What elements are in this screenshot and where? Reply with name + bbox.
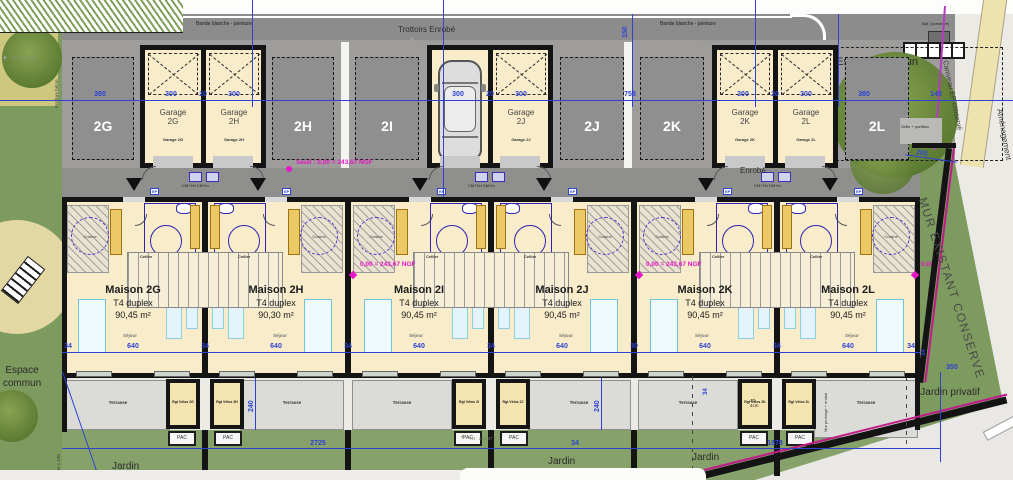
enrobe-label: Enrobé — [740, 166, 766, 175]
kitchen-circle: Cuisine — [71, 217, 109, 255]
house-title: Maison 2KT4 duplex90,45 m² — [677, 284, 732, 322]
level-marker-icon — [286, 166, 292, 172]
dashdot-axis — [692, 374, 693, 470]
survey-marker-icon: ◆ — [3, 56, 7, 62]
gate-wall-stub — [912, 143, 956, 148]
parking-spot — [845, 57, 909, 160]
bat-conserve-label: Bât. (conservé) — [922, 22, 949, 27]
parking-spot — [560, 57, 624, 160]
dim: 140 — [930, 91, 942, 99]
walkway-1 — [341, 42, 349, 168]
seuil-level: Seuil : 0,00 = 243,67 NGF — [296, 159, 373, 166]
tn-top-1: TN : 243,13 — [419, 37, 443, 42]
garage-label: Garage2K — [717, 108, 773, 126]
terrace-label: Terrasse — [393, 400, 411, 405]
garage-sublabel: Garage 2K — [717, 138, 773, 143]
dim: 34 — [64, 343, 72, 351]
entrance-arrow-icon — [412, 178, 428, 191]
garage-door — [500, 156, 540, 168]
coffret-label: CM+Tel CM+In — [754, 184, 781, 189]
dim: 758 — [624, 91, 636, 99]
utility-box — [475, 172, 488, 182]
cellier-label: Cellier — [140, 255, 152, 260]
dim: 34 — [344, 343, 352, 351]
house-title: Maison 2GT4 duplex90,45 m² — [105, 284, 161, 322]
parking-spot — [72, 57, 134, 160]
parking-label: 2K — [663, 118, 681, 134]
pac-unit: PAC — [214, 431, 242, 446]
dim-r34: 34 — [921, 349, 928, 356]
kitchen-circle: Cuisine — [300, 217, 338, 255]
jardin-label: Jardin — [548, 456, 575, 468]
terrace-label: Terrasse — [109, 400, 127, 405]
terrace-label: Terrasse — [857, 400, 875, 405]
cellier-label: Cellier — [238, 255, 250, 260]
site-plan: Bande blanche - peinture Bande blanche -… — [0, 0, 1013, 480]
dim-line-terrace — [601, 378, 602, 430]
garage-door — [153, 156, 193, 168]
jardin-label: Jardin — [692, 452, 719, 464]
parking-label: 2G — [94, 118, 113, 134]
dim: 350 — [946, 364, 958, 372]
wc-icon — [790, 203, 806, 214]
shed-label: Rgt Vélos 2G — [172, 400, 194, 404]
kitchen-circle: Cuisine — [357, 217, 395, 255]
dim-line-houses — [62, 352, 920, 353]
sidewalk-label: Trottoirs Enrobé — [398, 25, 455, 34]
dim: 300 — [800, 91, 812, 99]
dim: 300 — [515, 91, 527, 99]
tn-jardin: TN : 243,37 — [469, 436, 493, 441]
utility-box — [778, 172, 791, 182]
mur-prolonge-label: Mur prolongé + enduit — [824, 393, 829, 432]
parking-spot — [355, 57, 419, 160]
house-title: Maison 2LT4 duplex90,45 m² — [821, 284, 875, 322]
dining-table — [650, 299, 678, 353]
dim: 2725 — [310, 440, 326, 448]
parking-label: 2H — [294, 118, 312, 134]
garage-label: Garage2G — [145, 108, 201, 126]
garage-block: Garage2G Garage2H Garage 2G Garage 2H — [140, 45, 266, 168]
garage-door — [785, 156, 825, 168]
dim: 30 — [630, 343, 638, 351]
dining-table — [78, 299, 106, 353]
garage-block: Garage2I Garage2J Garage 2J — [427, 45, 553, 168]
garage-door — [213, 156, 253, 168]
dim: 640 — [842, 343, 854, 351]
parking-label: 2I — [381, 118, 393, 134]
survey-marker-icon: ◆ — [410, 37, 414, 43]
cellier-label: Cellier — [712, 255, 724, 260]
dim-t34: 34 — [703, 388, 710, 395]
dim: 640 — [127, 343, 139, 351]
garage-sublabel: Garage 2G — [145, 138, 201, 143]
garage-label: Garage2J — [493, 108, 549, 126]
pac-unit: PAC — [168, 431, 196, 446]
garage-door — [440, 156, 480, 168]
dim: 640 — [413, 343, 425, 351]
dim: 640 — [270, 343, 282, 351]
ngf-level: 0,00 = 243,67 NGF — [646, 261, 701, 268]
jardin-privatif-label: Jardin privatif — [918, 386, 982, 399]
cellier-label: Cellier — [524, 255, 536, 260]
kitchen-circle: Cuisine — [643, 217, 681, 255]
utility-box — [492, 172, 505, 182]
garage-sublabel: Garage 2L — [778, 138, 834, 143]
dining-table — [876, 299, 904, 353]
parking-label: 2L — [869, 118, 885, 134]
garage-sublabel: Garage 2H — [206, 138, 262, 143]
dim: 20 — [486, 91, 494, 99]
kitchen-circle: Cuisine — [586, 217, 624, 255]
house-title: Maison 2IT4 duplex90,45 m² — [394, 284, 444, 322]
kitchen-circle: Cuisine — [872, 217, 910, 255]
shed-label: Rgt Vélos 2J — [502, 400, 523, 404]
ngf-level: 0,00 = 243,67 NGF — [360, 261, 415, 268]
entrance-arrow-icon — [698, 178, 714, 191]
dim: 20 — [199, 91, 207, 99]
dim: 300 — [737, 91, 749, 99]
dim: 1878 — [767, 440, 783, 448]
dim: 300 — [452, 91, 464, 99]
hatched-band — [0, 0, 183, 33]
bottom-overlay-bar-bright — [460, 468, 706, 480]
dining-table — [364, 299, 392, 353]
dim-line-jardin — [62, 448, 940, 449]
utility-box — [189, 172, 202, 182]
ep-tag: EP — [282, 188, 291, 195]
pac-unit: PAC — [740, 431, 768, 446]
entrance-arrow-icon — [536, 178, 552, 191]
dim: 380 — [858, 91, 870, 99]
band-label-2: Bande blanche - peinture — [660, 22, 716, 28]
parking-label: 2J — [584, 118, 600, 134]
ep-tag: EP — [723, 188, 732, 195]
bordure-beton-label: Bordure béton — [54, 79, 59, 108]
wc-icon — [504, 203, 520, 214]
terrace-label: Terrasse — [283, 400, 301, 405]
shed-label: Rgt Vélos 2H — [216, 400, 238, 404]
entrance-arrow-icon — [250, 178, 266, 191]
coffret-label: CM+Tel CM+In — [468, 184, 495, 189]
parking-spot — [640, 57, 704, 160]
ep-tag: EP — [150, 188, 159, 195]
ep-tag: EP — [854, 188, 863, 195]
house-title: Maison 2JT4 duplex90,45 m² — [535, 284, 588, 322]
gate-patch — [900, 118, 942, 144]
tn-left: TN : 243,79 — [11, 56, 35, 61]
axis-line — [755, 0, 756, 107]
dim: 640 — [699, 343, 711, 351]
garage-label: Garage2L — [778, 108, 834, 126]
band-label-1: Bande blanche - peinture — [196, 22, 252, 28]
dim: 300 — [228, 91, 240, 99]
cellier-label: Cellier — [426, 255, 438, 260]
pac-unit: PAC — [500, 431, 528, 446]
jd-note: JD4cm — [750, 398, 759, 408]
dim: 34 — [487, 343, 495, 351]
dining-table — [590, 299, 618, 353]
wc-icon — [218, 203, 234, 214]
parking-spot — [272, 57, 334, 160]
ep-tag: EP — [568, 188, 577, 195]
espace-commun-label-left: Espace commun — [0, 364, 58, 390]
terrace-label: Terrasse — [679, 400, 697, 405]
dim: 34 — [571, 440, 579, 448]
axis-line — [838, 14, 839, 107]
dim: 20 — [771, 91, 779, 99]
grille-portillon-label: Grille + portillon — [901, 125, 929, 130]
dim: 300 — [165, 91, 177, 99]
entrance-arrow-icon — [126, 178, 142, 191]
house-title: Maison 2HT4 duplex90,30 m² — [248, 284, 303, 322]
dim: 380 — [94, 91, 106, 99]
h120-label: H = 120 — [56, 454, 61, 470]
ep-tag: EP — [437, 188, 446, 195]
dashdot-axis — [906, 378, 907, 444]
cellier-label: Cellier — [810, 255, 822, 260]
entrance-arrow-icon — [822, 178, 838, 191]
dim-line-garages — [0, 100, 1013, 101]
dim: 640 — [556, 343, 568, 351]
dim: 34 — [773, 343, 781, 351]
shed-label: Rgt Vélos 2L — [788, 400, 809, 404]
axis-line — [632, 14, 633, 107]
shed-label: Rgt Vélos 2I — [459, 400, 479, 404]
coffret-label: CM+Tel CM+In — [182, 184, 209, 189]
terrace-label: Terrasse — [570, 400, 588, 405]
dim-line-terrace — [255, 378, 256, 430]
garage-sublabel: Garage 2J — [493, 138, 549, 143]
dim: 34 — [907, 343, 915, 351]
utility-box — [206, 172, 219, 182]
axis-line — [443, 0, 444, 197]
axis-line — [252, 0, 253, 107]
garage-label: Garage2H — [206, 108, 262, 126]
dining-table — [304, 299, 332, 353]
dim-v150: 150 — [622, 26, 630, 38]
survey-marker-icon: ◆ — [461, 435, 465, 441]
walkway-2 — [624, 42, 632, 168]
garage-block: Garage2K Garage2L Garage 2K Garage 2L — [712, 45, 838, 168]
dim: 34 — [201, 343, 209, 351]
tn-top-2: TN : 243,13 — [700, 37, 724, 42]
